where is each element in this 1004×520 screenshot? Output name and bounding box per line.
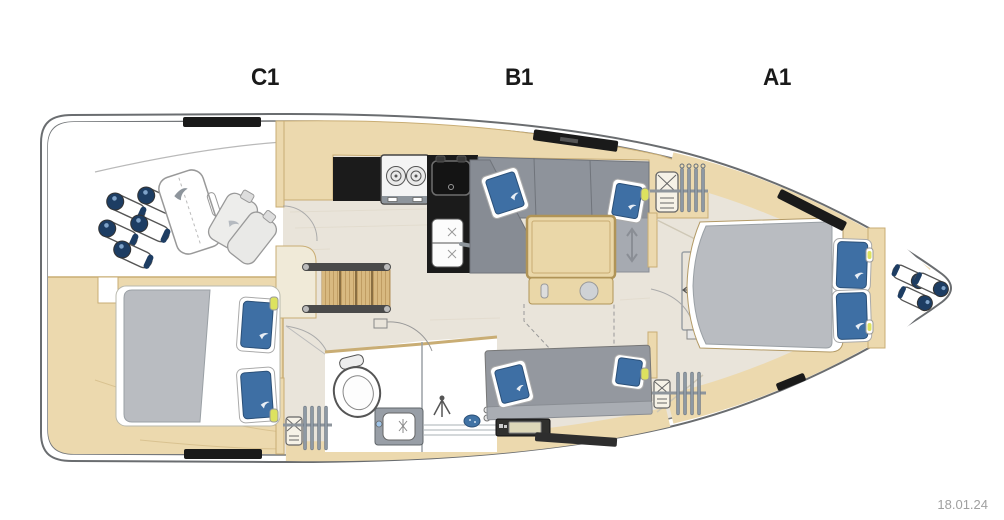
pillow-icon xyxy=(832,289,872,342)
floorplan-drawing xyxy=(0,0,1004,520)
pillow-icon xyxy=(832,238,872,291)
locker-cutout xyxy=(98,277,118,303)
reading-light-icon xyxy=(270,297,278,310)
stove-icon xyxy=(381,155,429,204)
aft-double-bed-icon xyxy=(116,286,280,426)
reading-light-icon xyxy=(641,368,649,380)
vanity-sink-icon xyxy=(375,408,423,445)
deck-hatch-icon xyxy=(183,117,261,127)
yacht-floorplan-canvas: C1 B1 A1 18.01.24 xyxy=(0,0,1004,520)
cabin-label-b1: B1 xyxy=(505,64,533,92)
cabin-label-a1: A1 xyxy=(763,64,791,92)
reading-light-icon xyxy=(270,409,278,422)
drain-icon xyxy=(464,415,480,427)
galley-sink-icon xyxy=(432,156,470,195)
deck-hatch-icon xyxy=(184,449,262,459)
date-stamp: 18.01.24 xyxy=(937,497,988,512)
reading-light-icon xyxy=(641,188,649,201)
cabin-label-c1: C1 xyxy=(251,64,279,92)
galley-counter xyxy=(333,157,383,201)
